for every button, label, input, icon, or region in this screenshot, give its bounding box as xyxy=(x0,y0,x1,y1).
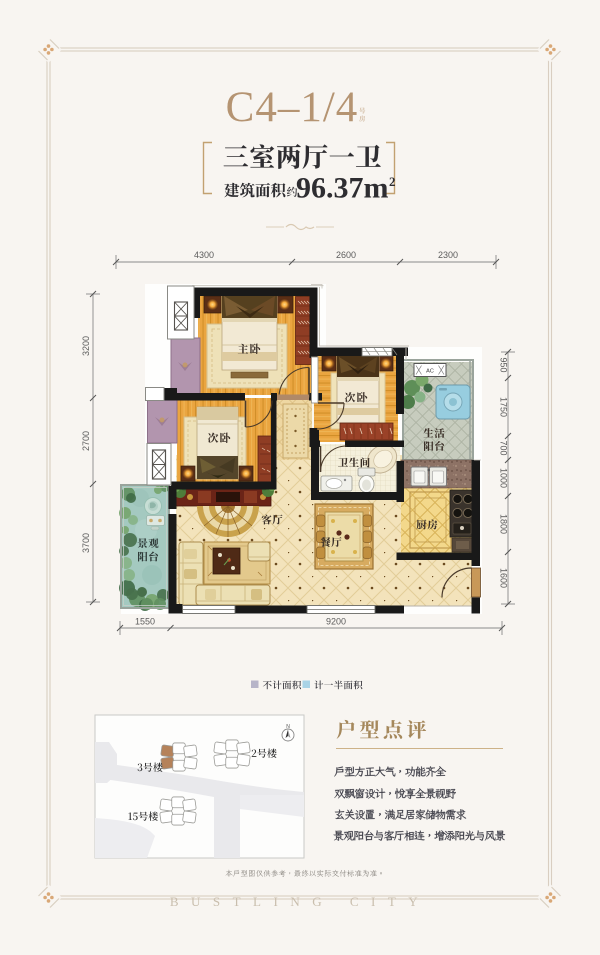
svg-text:2600: 2600 xyxy=(336,250,356,260)
svg-text:9200: 9200 xyxy=(326,617,346,627)
svg-text:1800: 1800 xyxy=(499,514,509,534)
svg-text:AC: AC xyxy=(426,369,434,375)
svg-text:4300: 4300 xyxy=(194,250,214,260)
svg-text:3700: 3700 xyxy=(81,533,91,553)
svg-text:1750: 1750 xyxy=(499,397,509,417)
svg-text:3200: 3200 xyxy=(81,336,91,356)
svg-text:1000: 1000 xyxy=(499,468,509,488)
svg-text:1600: 1600 xyxy=(499,568,509,588)
svg-text:N: N xyxy=(286,724,290,730)
svg-text:BUSTLING CITY: BUSTLING CITY xyxy=(170,894,430,909)
svg-text:1550: 1550 xyxy=(135,617,155,627)
svg-text:2700: 2700 xyxy=(81,431,91,451)
svg-text:96.37m: 96.37m xyxy=(296,172,389,205)
svg-text:2300: 2300 xyxy=(438,250,458,260)
svg-text:C4–1/4: C4–1/4 xyxy=(226,84,359,131)
svg-text:700: 700 xyxy=(499,440,509,455)
svg-text:2: 2 xyxy=(389,174,396,189)
svg-text:950: 950 xyxy=(499,357,509,372)
